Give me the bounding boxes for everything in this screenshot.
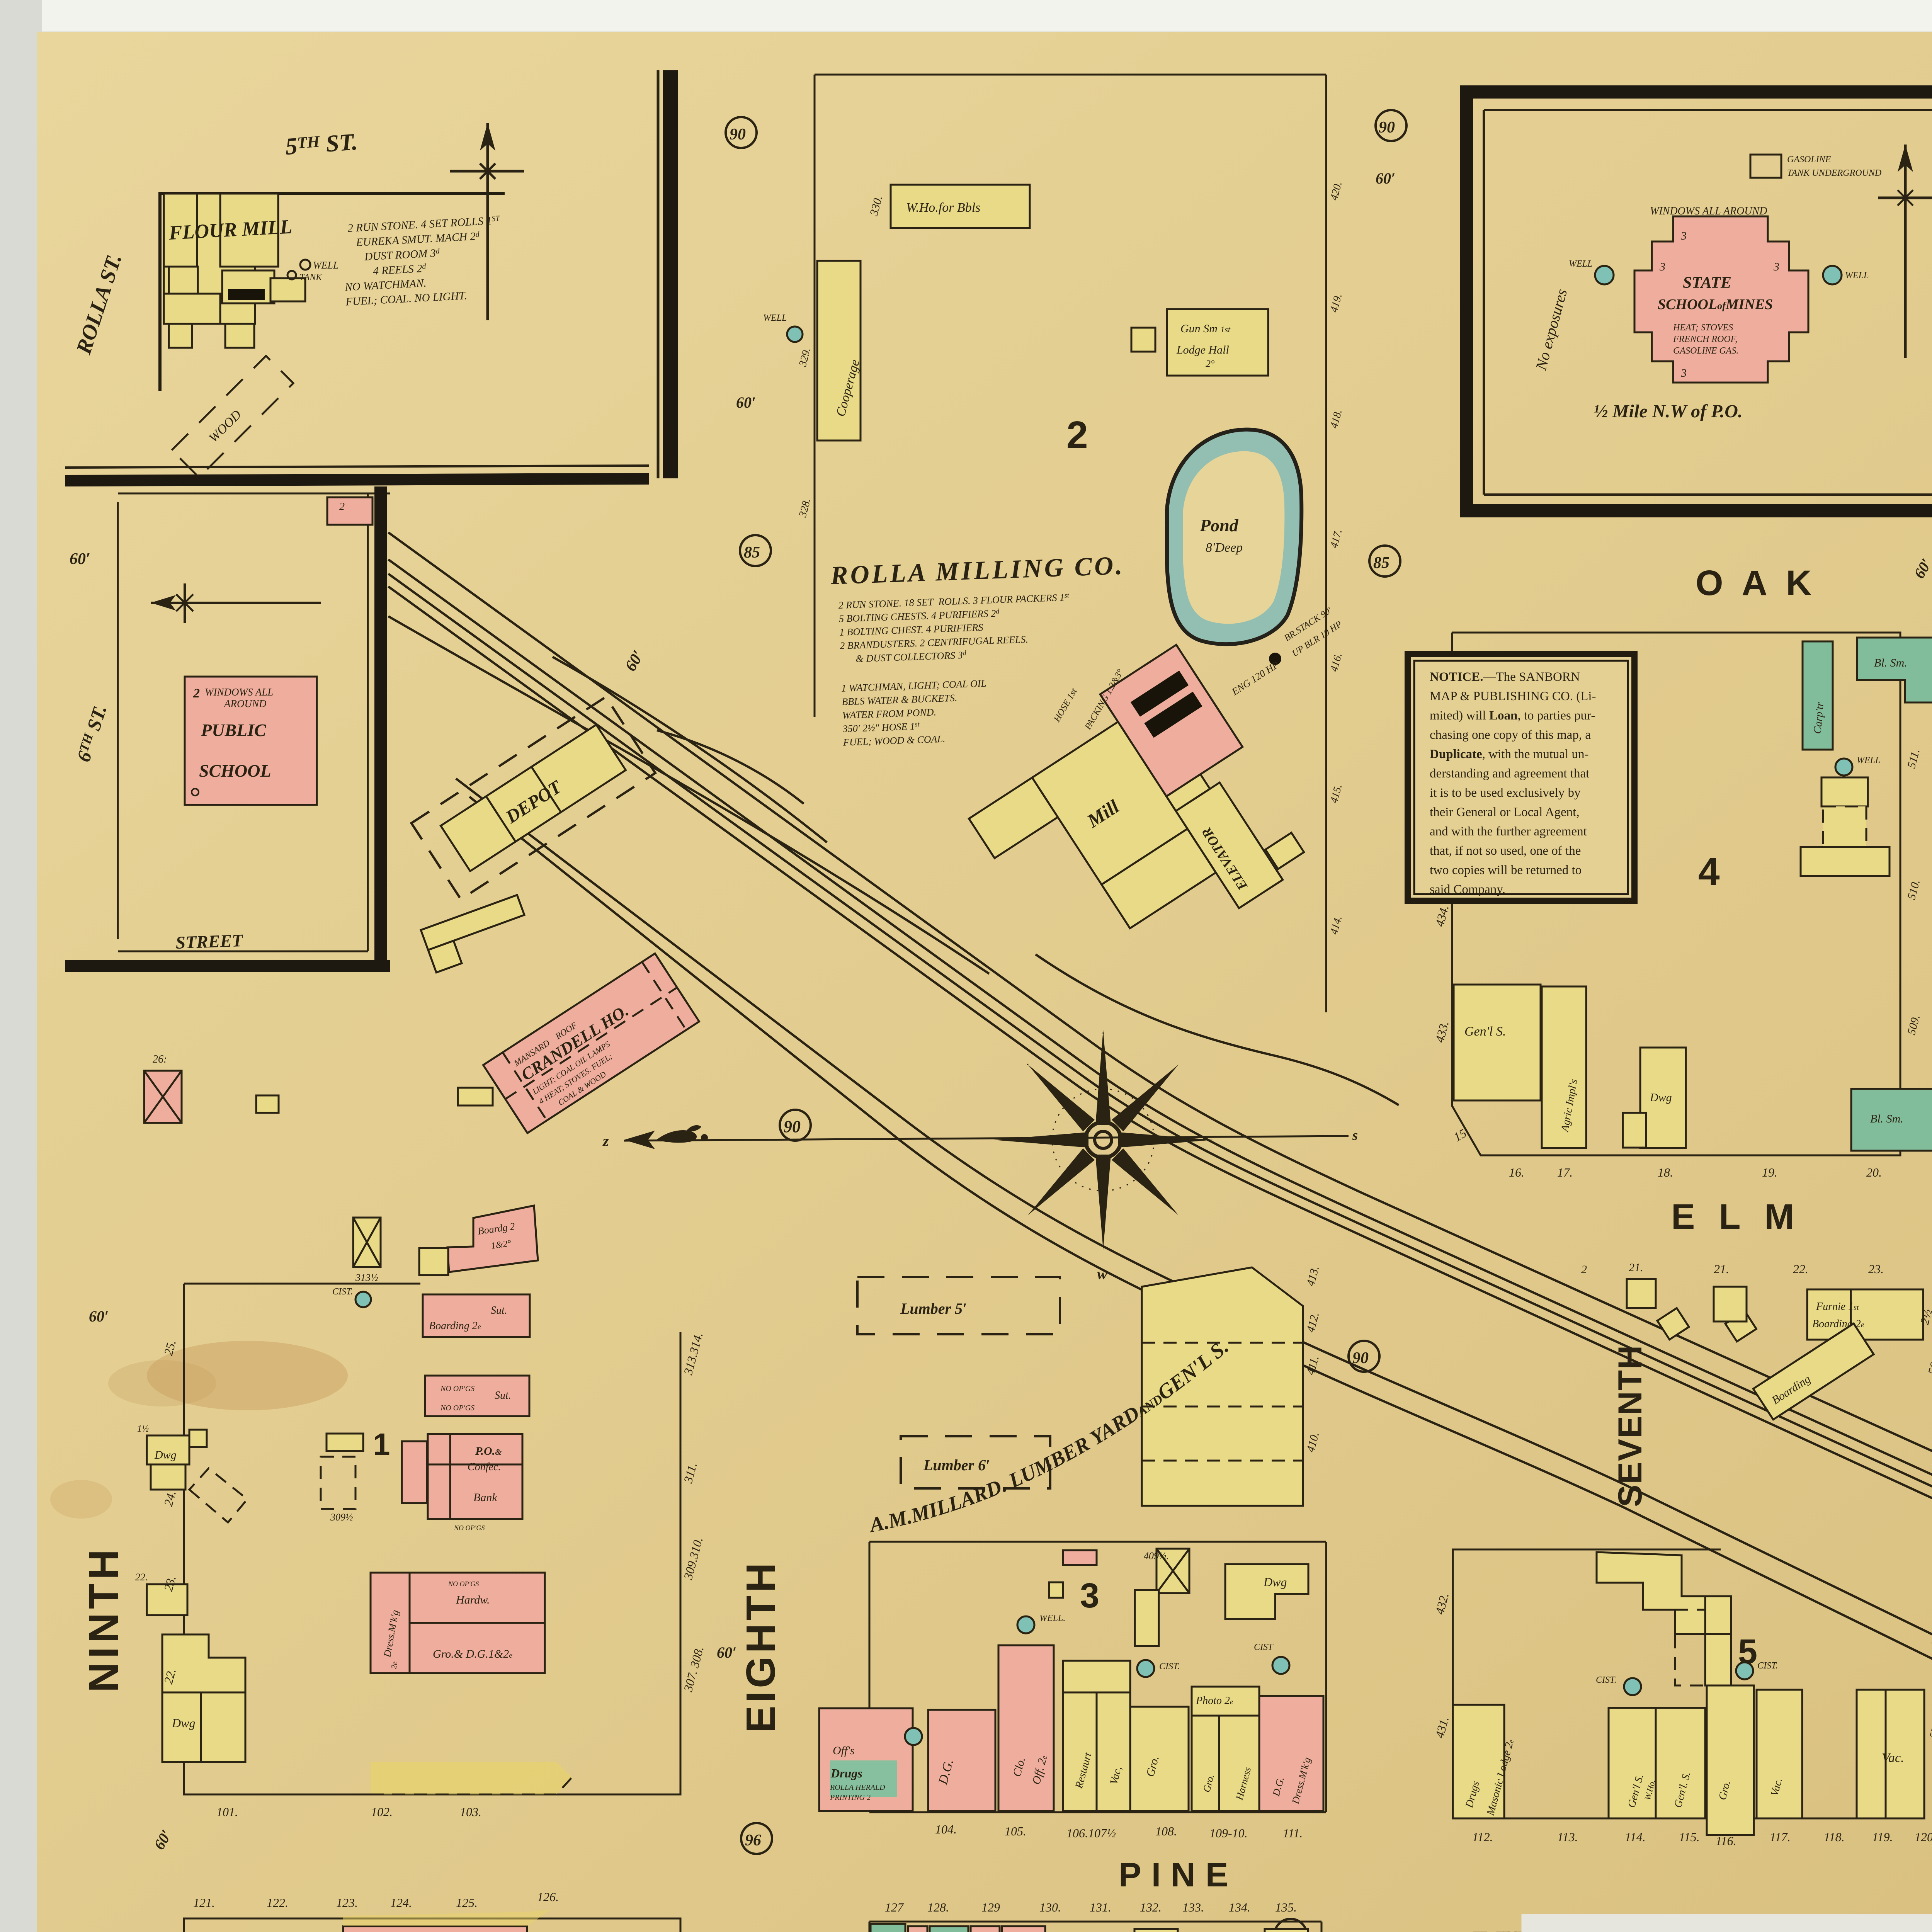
svg-text:CIST.: CIST. xyxy=(1757,1661,1778,1671)
svg-text:NINTH: NINTH xyxy=(80,1546,127,1692)
svg-text:CIST.: CIST. xyxy=(1596,1675,1617,1685)
svg-text:26:: 26: xyxy=(153,1053,167,1065)
svg-text:90: 90 xyxy=(730,126,746,143)
svg-text:said Company.: said Company. xyxy=(1430,883,1505,896)
svg-text:WELL: WELL xyxy=(763,313,787,323)
svg-text:ROLLA HERALD: ROLLA HERALD xyxy=(830,1783,885,1792)
svg-text:SCHOOLofMINES: SCHOOLofMINES xyxy=(1658,296,1773,313)
svg-text:134.: 134. xyxy=(1229,1900,1250,1914)
svg-text:118.: 118. xyxy=(1824,1830,1845,1844)
svg-text:Duplicate, with the mutual un-: Duplicate, with the mutual un- xyxy=(1430,747,1589,761)
svg-text:Dwg: Dwg xyxy=(1263,1575,1287,1589)
svg-text:2°: 2° xyxy=(1206,358,1214,369)
svg-text:Dwg: Dwg xyxy=(154,1449,177,1461)
svg-text:NO OP'GS: NO OP'GS xyxy=(454,1524,485,1532)
svg-text:Dwg: Dwg xyxy=(172,1716,195,1730)
svg-text:111.: 111. xyxy=(1283,1826,1303,1840)
svg-text:WELL: WELL xyxy=(313,260,338,271)
svg-text:Lodge Hall: Lodge Hall xyxy=(1176,344,1229,356)
svg-text:132.: 132. xyxy=(1140,1900,1162,1914)
svg-text:90: 90 xyxy=(1379,119,1395,136)
svg-text:85: 85 xyxy=(1373,554,1389,572)
svg-text:131.: 131. xyxy=(1090,1900,1111,1914)
svg-text:Lumber 5′: Lumber 5′ xyxy=(900,1300,967,1317)
svg-text:4: 4 xyxy=(1698,850,1720,893)
svg-text:AROUND: AROUND xyxy=(223,698,267,709)
svg-text:Boarding 2e: Boarding 2e xyxy=(429,1320,481,1332)
svg-text:105.: 105. xyxy=(1005,1824,1026,1838)
svg-text:Vac.: Vac. xyxy=(1882,1751,1904,1765)
svg-text:96: 96 xyxy=(745,1832,761,1849)
svg-text:s: s xyxy=(1352,1128,1358,1143)
svg-text:Lumber 6′: Lumber 6′ xyxy=(923,1456,990,1474)
svg-text:60′: 60′ xyxy=(89,1308,109,1325)
svg-text:138.: 138. xyxy=(1499,1929,1521,1932)
svg-text:derstanding and agreement that: derstanding and agreement that xyxy=(1430,767,1589,781)
svg-text:117.: 117. xyxy=(1770,1830,1791,1844)
svg-text:HEAT; STOVES: HEAT; STOVES xyxy=(1673,323,1733,333)
svg-text:WINDOWS ALL AROUND: WINDOWS ALL AROUND xyxy=(1650,205,1767,217)
svg-text:17.: 17. xyxy=(1557,1165,1573,1179)
svg-text:106.107½: 106.107½ xyxy=(1066,1826,1116,1840)
svg-text:135.: 135. xyxy=(1275,1900,1297,1914)
svg-text:124.: 124. xyxy=(390,1896,412,1910)
svg-text:MAP & PUBLISHING CO. (Li-: MAP & PUBLISHING CO. (Li- xyxy=(1430,689,1596,703)
svg-text:109-10.: 109-10. xyxy=(1209,1826,1248,1840)
svg-text:21.: 21. xyxy=(1714,1262,1729,1276)
svg-text:Confec.: Confec. xyxy=(468,1461,501,1473)
svg-text:140.141.: 140.141. xyxy=(1696,1929,1740,1932)
svg-text:19.: 19. xyxy=(1762,1165,1777,1179)
svg-text:Bl. Sm.: Bl. Sm. xyxy=(1870,1112,1903,1125)
svg-text:1: 1 xyxy=(373,1427,390,1461)
svg-text:PINE: PINE xyxy=(1119,1855,1238,1894)
svg-text:23.: 23. xyxy=(1868,1262,1884,1276)
svg-text:NO OP'GS: NO OP'GS xyxy=(440,1404,474,1412)
svg-text:Hardw.: Hardw. xyxy=(456,1594,490,1606)
svg-text:2: 2 xyxy=(1066,413,1088,457)
svg-text:90: 90 xyxy=(1352,1349,1369,1367)
svg-text:WELL: WELL xyxy=(1845,270,1869,281)
svg-text:130.: 130. xyxy=(1039,1900,1061,1914)
svg-text:1½: 1½ xyxy=(137,1424,149,1434)
svg-text:102.: 102. xyxy=(371,1805,393,1819)
svg-text:Furnie 1st: Furnie 1st xyxy=(1816,1301,1859,1313)
svg-text:129: 129 xyxy=(981,1900,1000,1914)
svg-text:128.: 128. xyxy=(927,1900,949,1914)
svg-text:143. 144.: 143. 144. xyxy=(1839,1927,1886,1932)
svg-text:chasing one copy of this map,: chasing one copy of this map, a xyxy=(1430,728,1591,742)
svg-text:3: 3 xyxy=(1680,367,1687,379)
svg-text:WINDOWS ALL: WINDOWS ALL xyxy=(205,686,273,698)
svg-text:Photo 2e: Photo 2e xyxy=(1196,1695,1233,1707)
svg-text:20.: 20. xyxy=(1866,1165,1882,1179)
svg-text:OAK: OAK xyxy=(1696,563,1830,603)
svg-text:CIST.: CIST. xyxy=(1159,1662,1180,1672)
svg-text:125.: 125. xyxy=(456,1896,478,1910)
svg-text:SEVENTH: SEVENTH xyxy=(1612,1345,1649,1507)
svg-text:TANK UNDERGROUND: TANK UNDERGROUND xyxy=(1787,168,1881,178)
svg-text:5TH ST.: 5TH ST. xyxy=(284,129,358,160)
svg-text:18.: 18. xyxy=(1658,1165,1673,1179)
svg-text:Gen'l S.: Gen'l S. xyxy=(1464,1024,1506,1039)
svg-text:Sut.: Sut. xyxy=(495,1389,511,1401)
svg-text:EIGHTH: EIGHTH xyxy=(738,1560,784,1733)
svg-text:60′: 60′ xyxy=(717,1644,736,1661)
svg-text:2: 2 xyxy=(1581,1263,1587,1276)
svg-text:123.: 123. xyxy=(336,1896,358,1910)
svg-text:Bl. Sm.: Bl. Sm. xyxy=(1874,656,1907,669)
svg-text:90: 90 xyxy=(784,1117,801,1136)
svg-text:TANK: TANK xyxy=(299,272,323,282)
svg-text:2: 2 xyxy=(339,501,345,513)
svg-text:Sut.: Sut. xyxy=(491,1304,507,1316)
svg-text:NO OP'GS: NO OP'GS xyxy=(440,1384,474,1393)
svg-text:116.: 116. xyxy=(1716,1834,1736,1848)
svg-text:22.: 22. xyxy=(135,1571,148,1583)
svg-text:ELM: ELM xyxy=(1671,1197,1818,1236)
svg-text:NOTICE.—The SANBORN: NOTICE.—The SANBORN xyxy=(1430,670,1580,684)
svg-text:114.: 114. xyxy=(1625,1830,1646,1844)
svg-text:142.: 142. xyxy=(1777,1929,1799,1932)
svg-text:WELL.: WELL. xyxy=(1039,1613,1065,1623)
svg-text:121.: 121. xyxy=(193,1896,215,1910)
svg-text:Pond: Pond xyxy=(1199,515,1239,535)
svg-text:GASOLINE GAS.: GASOLINE GAS. xyxy=(1673,346,1738,356)
svg-text:3: 3 xyxy=(1659,260,1665,273)
svg-text:Drugs: Drugs xyxy=(830,1766,862,1780)
svg-text:3: 3 xyxy=(1080,1577,1099,1615)
svg-text:60′: 60′ xyxy=(736,394,756,411)
svg-text:½ Mile N.W of P.O.: ½ Mile N.W of P.O. xyxy=(1594,401,1743,422)
svg-text:z: z xyxy=(602,1132,609,1150)
svg-text:2: 2 xyxy=(193,686,200,701)
svg-text:309½: 309½ xyxy=(330,1512,353,1523)
svg-text:113.: 113. xyxy=(1557,1830,1578,1844)
svg-text:101.: 101. xyxy=(216,1805,238,1819)
svg-text:PUBLIC: PUBLIC xyxy=(201,720,267,740)
svg-text:it is to be used exclusively b: it is to be used exclusively by xyxy=(1430,786,1581,800)
svg-text:two copies will be returned to: two copies will be returned to xyxy=(1430,863,1582,877)
svg-text:122.: 122. xyxy=(267,1896,288,1910)
svg-text:139.: 139. xyxy=(1615,1929,1637,1932)
svg-text:PRINTING 2: PRINTING 2 xyxy=(830,1793,871,1802)
svg-text:115.: 115. xyxy=(1679,1830,1700,1844)
svg-text:103.: 103. xyxy=(460,1805,481,1819)
svg-text:w: w xyxy=(1097,1265,1107,1282)
svg-text:CIST: CIST xyxy=(1254,1642,1274,1652)
svg-text:16.: 16. xyxy=(1509,1165,1524,1179)
svg-text:FRENCH ROOF,: FRENCH ROOF, xyxy=(1673,334,1737,344)
svg-text:Gro.& D.G.1&2e: Gro.& D.G.1&2e xyxy=(433,1648,512,1660)
svg-text:3: 3 xyxy=(1773,260,1779,273)
svg-text:SCHOOL: SCHOOL xyxy=(199,761,271,781)
svg-text:WELL: WELL xyxy=(1857,755,1880,765)
svg-text:their General or Local Agent,: their General or Local Agent, xyxy=(1430,805,1580,819)
svg-text:85: 85 xyxy=(744,544,760,561)
svg-text:145.: 145. xyxy=(1917,1927,1932,1932)
svg-text:60′: 60′ xyxy=(1376,170,1395,187)
svg-text:22.: 22. xyxy=(1793,1262,1808,1276)
svg-text:Dwg: Dwg xyxy=(1650,1091,1672,1104)
svg-text:STATE: STATE xyxy=(1683,274,1731,292)
svg-text:NO OP'GS: NO OP'GS xyxy=(448,1580,479,1588)
svg-text:108.: 108. xyxy=(1155,1824,1177,1838)
svg-text:127: 127 xyxy=(885,1900,904,1914)
svg-text:120.: 120. xyxy=(1915,1830,1932,1844)
svg-text:21.: 21. xyxy=(1629,1261,1643,1274)
svg-text:126.: 126. xyxy=(537,1890,559,1904)
svg-text:GASOLINE: GASOLINE xyxy=(1787,155,1831,165)
svg-text:8′Deep: 8′Deep xyxy=(1206,541,1243,555)
svg-text:and with the further agreement: and with the further agreement xyxy=(1430,825,1587,838)
svg-text:Off's: Off's xyxy=(833,1744,854,1757)
svg-text:119.: 119. xyxy=(1872,1830,1893,1844)
svg-text:313½: 313½ xyxy=(355,1272,378,1283)
svg-text:2e: 2e xyxy=(389,1661,399,1670)
svg-text:mited) will Loan, to parties p: mited) will Loan, to parties pur- xyxy=(1430,709,1595,723)
svg-text:112.: 112. xyxy=(1472,1830,1493,1844)
svg-text:WELL: WELL xyxy=(1569,259,1592,269)
svg-text:60′: 60′ xyxy=(70,550,90,568)
svg-text:that, if not so used, one of t: that, if not so used, one of the xyxy=(1430,844,1581,858)
svg-text:104.: 104. xyxy=(935,1822,957,1836)
svg-text:409½.: 409½. xyxy=(1144,1550,1169,1561)
svg-text:W.Ho.for Bbls: W.Ho.for Bbls xyxy=(906,201,980,215)
svg-text:Bank: Bank xyxy=(473,1491,497,1504)
svg-text:CIST.: CIST. xyxy=(332,1287,353,1297)
svg-text:STREET: STREET xyxy=(175,930,244,952)
svg-text:133.: 133. xyxy=(1182,1900,1204,1914)
svg-text:3: 3 xyxy=(1680,230,1687,242)
